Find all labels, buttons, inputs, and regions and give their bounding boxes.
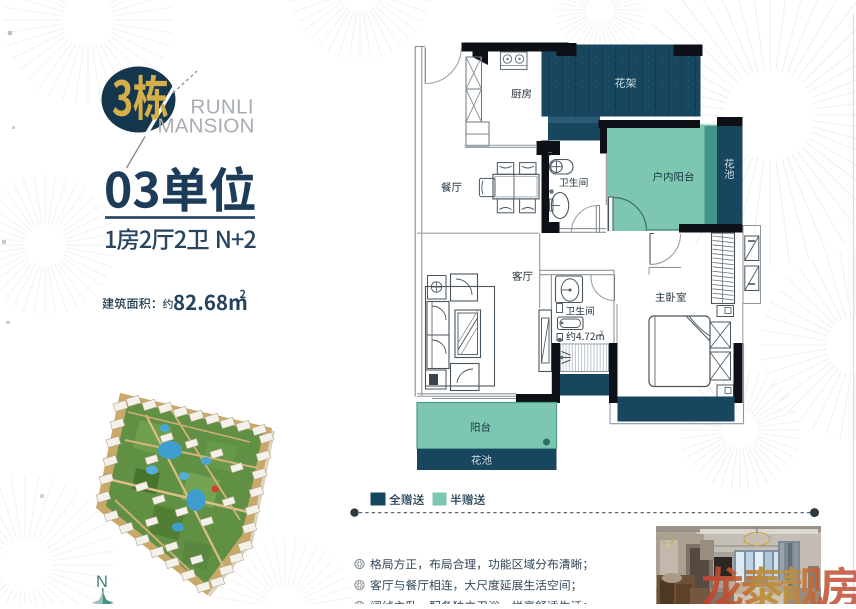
svg-text:MANSION: MANSION <box>158 115 255 138</box>
svg-text:N: N <box>96 573 108 591</box>
